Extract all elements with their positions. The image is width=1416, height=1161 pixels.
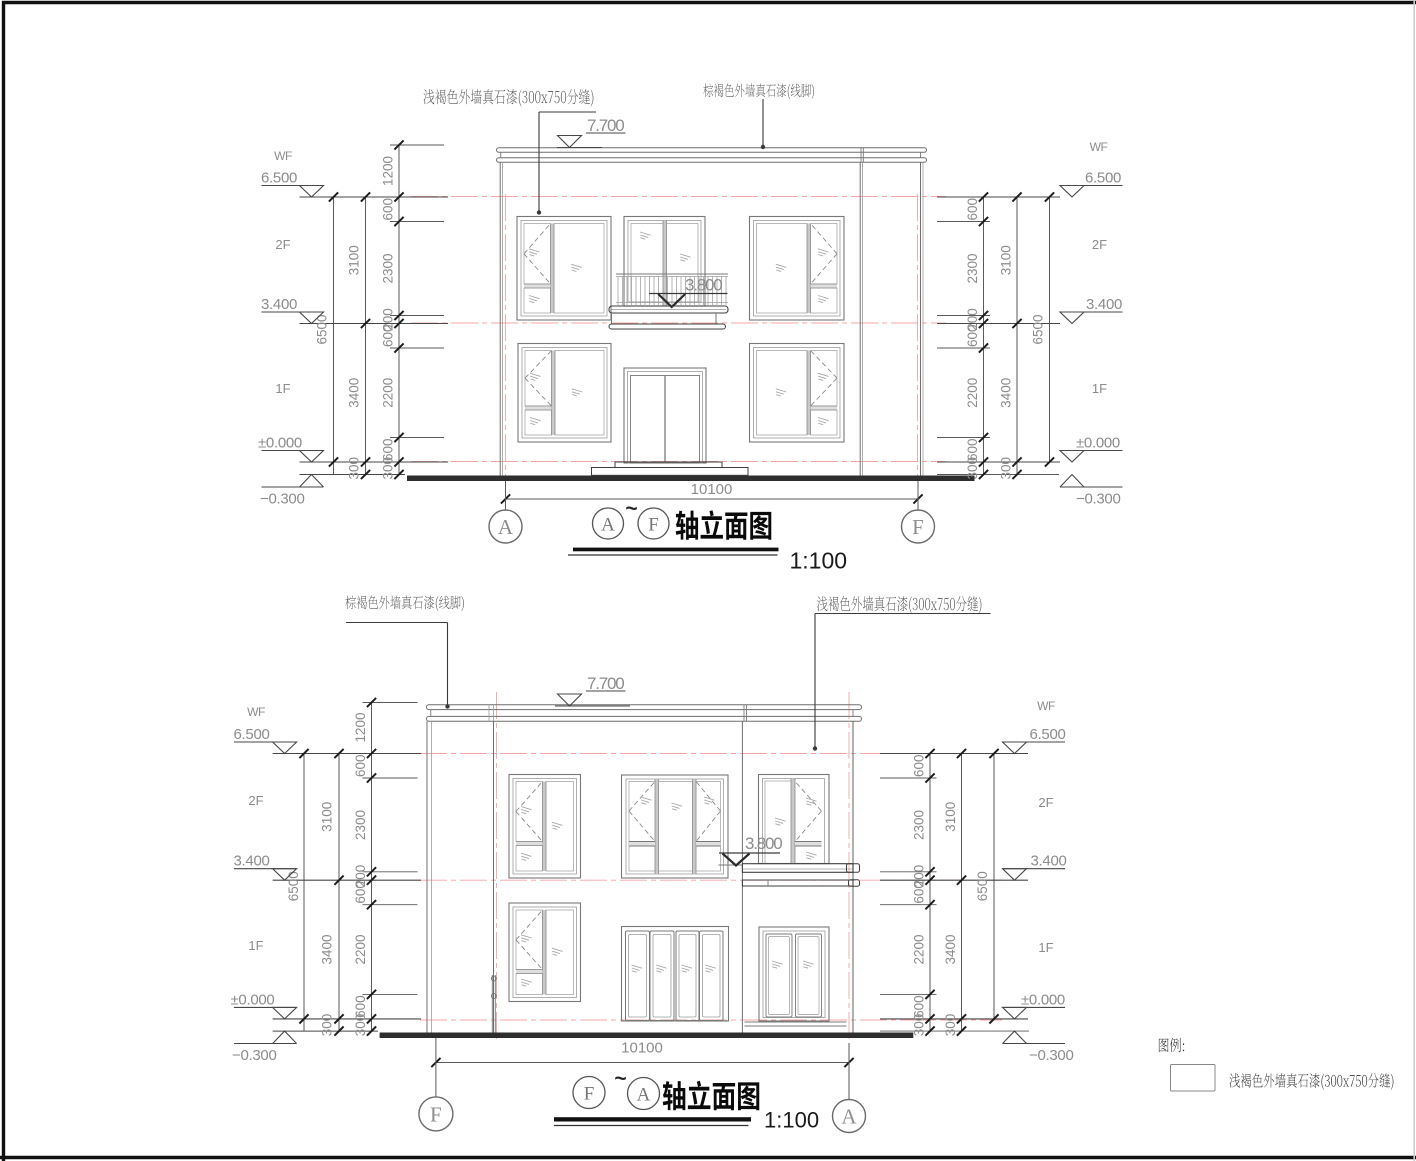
svg-text:1:100: 1:100 [764,1108,819,1133]
svg-text:3.400: 3.400 [261,296,297,313]
svg-text:3.400: 3.400 [1031,853,1067,870]
svg-text:6.500: 6.500 [1030,726,1066,743]
svg-text:1200: 1200 [353,712,368,742]
svg-text:600: 600 [912,754,927,777]
svg-text:3400: 3400 [320,934,335,964]
svg-text:F: F [648,515,659,536]
svg-text:600: 600 [353,754,368,777]
svg-text:1:100: 1:100 [790,548,848,574]
svg-text:300: 300 [999,457,1014,480]
svg-text:A: A [601,515,615,536]
svg-text:3400: 3400 [943,934,958,964]
svg-text:6.500: 6.500 [234,726,270,743]
svg-text:−0.300: −0.300 [232,1047,277,1064]
svg-text:600: 600 [965,198,980,221]
svg-text:600: 600 [353,881,368,904]
svg-text:3400: 3400 [999,378,1014,408]
svg-text:1F: 1F [1038,940,1053,955]
svg-text:10100: 10100 [621,1040,663,1057]
svg-text:−0.300: −0.300 [1076,491,1121,508]
svg-text:WF: WF [274,149,292,163]
svg-text:3100: 3100 [320,802,335,832]
svg-text:A: A [637,1085,651,1106]
svg-text:−0.300: −0.300 [1029,1047,1074,1064]
svg-text:7.700: 7.700 [587,116,624,135]
svg-text:2300: 2300 [353,810,368,840]
svg-text:~: ~ [614,1068,626,1091]
svg-text:F: F [584,1084,595,1105]
svg-text:10100: 10100 [691,481,733,498]
svg-text:2F: 2F [1092,237,1107,252]
svg-text:3100: 3100 [999,245,1014,275]
svg-text:3100: 3100 [943,802,958,832]
svg-text:3400: 3400 [347,378,362,408]
svg-text:F: F [430,1102,442,1126]
svg-text:6500: 6500 [286,871,301,901]
svg-text:1F: 1F [248,938,263,953]
svg-text:1200: 1200 [381,156,396,186]
svg-text:±0.000: ±0.000 [231,991,275,1008]
svg-text:2200: 2200 [965,378,980,408]
svg-text:~: ~ [625,498,637,521]
svg-text:300: 300 [320,1014,335,1037]
svg-text:300: 300 [381,457,396,480]
svg-text:WF: WF [1090,140,1108,154]
svg-text:F: F [912,515,924,539]
svg-text:A: A [498,515,514,539]
svg-text:1F: 1F [1092,381,1107,396]
svg-text:WF: WF [1037,699,1055,713]
svg-text:6.500: 6.500 [1085,170,1121,187]
svg-text:300: 300 [912,1014,927,1037]
svg-text:−0.300: −0.300 [260,491,305,508]
svg-text:300: 300 [353,1014,368,1037]
svg-text:2200: 2200 [353,934,368,964]
svg-text:A: A [841,1105,857,1129]
svg-text:2200: 2200 [912,934,927,964]
svg-text:300: 300 [943,1014,958,1037]
svg-text:3.800: 3.800 [685,276,722,295]
svg-text:3100: 3100 [347,245,362,275]
svg-text:3.400: 3.400 [1086,296,1122,313]
svg-text:300: 300 [965,457,980,480]
svg-text:±0.000: ±0.000 [258,435,302,452]
svg-text:2200: 2200 [381,378,396,408]
svg-text:7.700: 7.700 [587,674,624,693]
svg-text:2300: 2300 [965,253,980,283]
svg-text:600: 600 [912,881,927,904]
svg-text:6.500: 6.500 [261,170,297,187]
svg-text:WF: WF [247,705,265,719]
svg-text:2300: 2300 [381,253,396,283]
svg-text:6500: 6500 [1031,314,1046,344]
svg-text:2F: 2F [248,793,263,808]
svg-text:2300: 2300 [912,810,927,840]
svg-text:6500: 6500 [975,871,990,901]
svg-text:600: 600 [381,198,396,221]
svg-text:600: 600 [965,324,980,347]
svg-text:3.400: 3.400 [234,853,270,870]
svg-text:300: 300 [347,457,362,480]
svg-text:±0.000: ±0.000 [1021,991,1065,1008]
svg-text:600: 600 [381,324,396,347]
svg-text:2F: 2F [275,237,290,252]
svg-text:3.800: 3.800 [745,834,782,853]
svg-text:1F: 1F [275,381,290,396]
svg-text:2F: 2F [1038,795,1053,810]
svg-text:±0.000: ±0.000 [1076,435,1120,452]
